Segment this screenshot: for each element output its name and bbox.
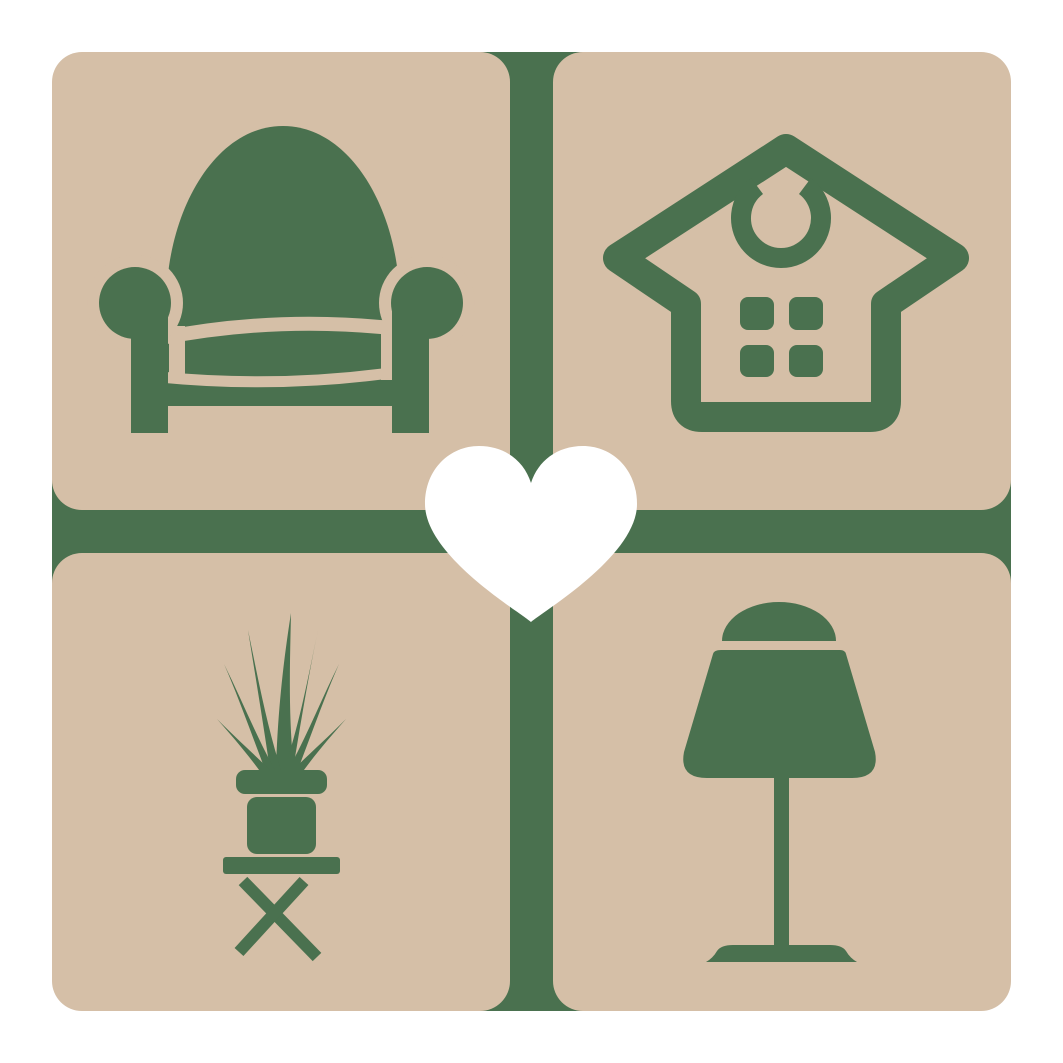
house-window-pane-3 <box>740 345 774 377</box>
lamp-shade <box>683 650 876 778</box>
lamp-stem <box>774 778 789 948</box>
plant-pot-rim <box>236 770 327 794</box>
plant-pot-body <box>247 797 316 854</box>
house-window-pane-1 <box>740 297 774 330</box>
armchair-seat <box>168 334 396 406</box>
house-window-pane-2 <box>789 297 823 330</box>
logo-canvas <box>0 0 1063 1063</box>
armchair-leg-right <box>392 297 429 433</box>
logo-graphic <box>0 0 1063 1063</box>
lamp-base <box>706 945 857 962</box>
house-window-pane-4 <box>789 345 823 377</box>
armchair-leg-left <box>131 297 168 433</box>
plant-table-top <box>223 857 340 874</box>
